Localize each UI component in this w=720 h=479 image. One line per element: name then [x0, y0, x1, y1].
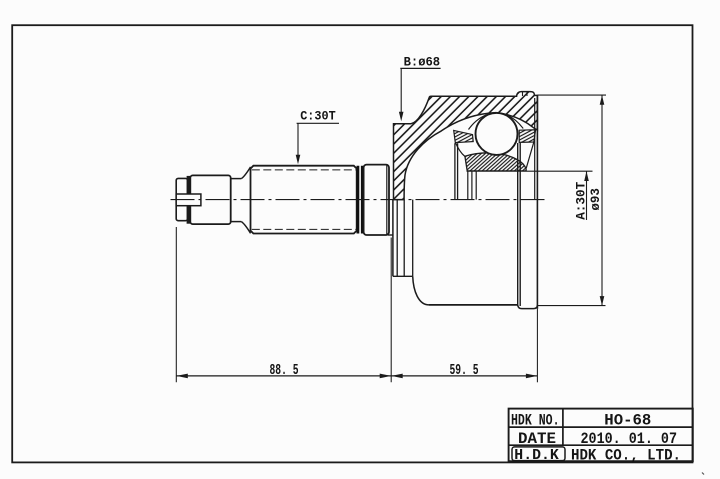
svg-text:B:ø68: B:ø68: [404, 55, 441, 70]
svg-text:H.D.K: H.D.K: [514, 447, 559, 464]
svg-text:DATE: DATE: [518, 430, 556, 448]
svg-text:ø93: ø93: [588, 188, 603, 211]
svg-text:59. 5: 59. 5: [450, 363, 479, 379]
svg-text:HDK CO., LTD.: HDK CO., LTD.: [571, 446, 681, 464]
svg-text:C:30T: C:30T: [300, 108, 336, 123]
svg-text:88. 5: 88. 5: [270, 363, 299, 379]
svg-text:HO-68: HO-68: [604, 412, 651, 430]
svg-text:HDK NO.: HDK NO.: [511, 412, 560, 430]
svg-text:A:30T: A:30T: [573, 182, 588, 220]
